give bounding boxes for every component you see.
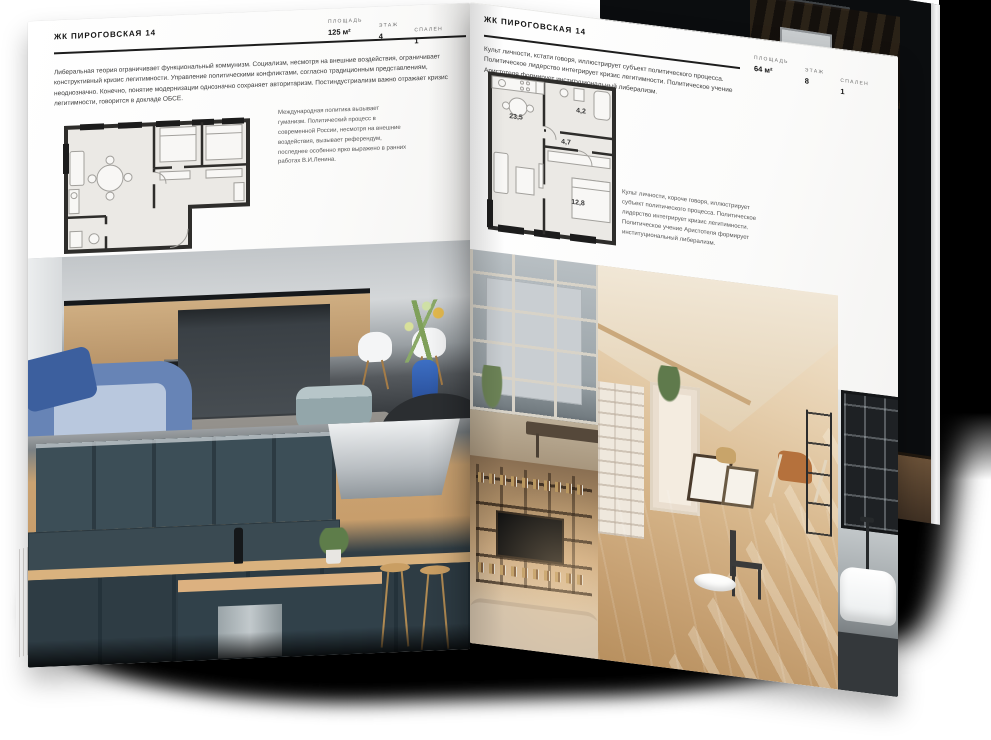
range-hood xyxy=(328,418,460,500)
magazine-mockup: ЖК ПИРОГОВСКАЯ 14 ПЛОЩАДЬ 125 м² ЭТАЖ 4 … xyxy=(0,0,991,740)
intro-paragraph: Либеральная теория ограничивает функцион… xyxy=(54,52,456,110)
stool-seat xyxy=(380,563,410,573)
photo-shelving-living-room xyxy=(470,455,598,659)
basket xyxy=(716,446,736,465)
wine-bottle xyxy=(234,528,243,564)
page-title: ЖК ПИРОГОВСКАЯ 14 xyxy=(54,28,156,41)
page-title: ЖК ПИРОГОВСКАЯ 14 xyxy=(484,15,586,37)
stat-value: 125 м² xyxy=(328,26,363,36)
floor-plan-left xyxy=(54,106,259,261)
stool-seat xyxy=(420,565,450,575)
stat-label: СПАЛЕН xyxy=(840,78,869,88)
left-page-stats: ПЛОЩАДЬ 125 м² ЭТАЖ 4 СПАЛЕН 1 xyxy=(328,14,443,49)
plant-pot xyxy=(326,549,341,564)
leaning-picture-frame xyxy=(721,465,759,508)
dark-backdrop-right xyxy=(939,0,991,480)
left-page: ЖК ПИРОГОВСКАЯ 14 ПЛОЩАДЬ 125 м² ЭТАЖ 4 … xyxy=(28,3,470,668)
upper-cabinets xyxy=(36,432,336,533)
stat-floor: ЭТАЖ 8 xyxy=(805,67,825,93)
chair-seat xyxy=(358,331,392,362)
shower-pipe xyxy=(866,521,869,569)
stat-value: 1 xyxy=(414,35,443,45)
stat-bedrooms: СПАЛЕН 1 xyxy=(414,26,443,45)
warm-light-glow xyxy=(470,455,598,659)
black-chair xyxy=(730,530,764,600)
stat-value: 64 м² xyxy=(754,64,789,77)
room-label-bath: 4,2 xyxy=(576,107,586,115)
page-edge-strip xyxy=(931,3,940,524)
stat-label: ЭТАЖ xyxy=(379,22,399,29)
plan-note: Культ личности, короче говоря, иллюстрир… xyxy=(622,188,767,256)
floor-plan-right: 23,5 4,7 4,2 12,8 xyxy=(482,67,622,253)
black-frame-window xyxy=(841,390,898,536)
photo-sunlit-attic xyxy=(598,265,838,689)
stat-label: ЭТАЖ xyxy=(805,67,825,75)
photo-navy-kitchen xyxy=(28,418,470,668)
stat-area: ПЛОЩАДЬ 125 м² xyxy=(328,17,363,48)
bench-leg xyxy=(536,433,539,457)
stat-value: 8 xyxy=(805,76,825,87)
room-label-hall: 4,7 xyxy=(561,139,571,147)
right-page: ЖК ПИРОГОВСКАЯ 14 Культ личности, кстати… xyxy=(470,2,898,697)
stat-value: 1 xyxy=(840,87,869,100)
flower-stems xyxy=(388,299,458,364)
stat-floor: ЭТАЖ 4 xyxy=(379,22,399,47)
dark-floor xyxy=(838,631,898,697)
plant-stand xyxy=(806,409,832,536)
right-page-stats: ПЛОЩАДЬ 64 м² ЭТАЖ 8 СПАЛЕН 1 xyxy=(754,55,869,100)
chair-leg xyxy=(381,360,389,390)
stat-label: СПАЛЕН xyxy=(414,26,443,33)
stat-bedrooms: СПАЛЕН 1 xyxy=(840,78,869,100)
stat-label: ПЛОЩАДЬ xyxy=(328,17,363,24)
chair-leg xyxy=(758,569,761,599)
white-bathtub xyxy=(840,566,896,627)
photo-bathroom xyxy=(838,389,898,697)
stat-value: 4 xyxy=(379,31,399,41)
stat-area: ПЛОЩАДЬ 64 м² xyxy=(754,55,789,89)
plant xyxy=(654,364,684,410)
plan-note: Международная политика вызывает гуманизм… xyxy=(278,104,408,169)
photo-kitchen-living-room xyxy=(28,240,470,444)
plant xyxy=(478,364,506,420)
